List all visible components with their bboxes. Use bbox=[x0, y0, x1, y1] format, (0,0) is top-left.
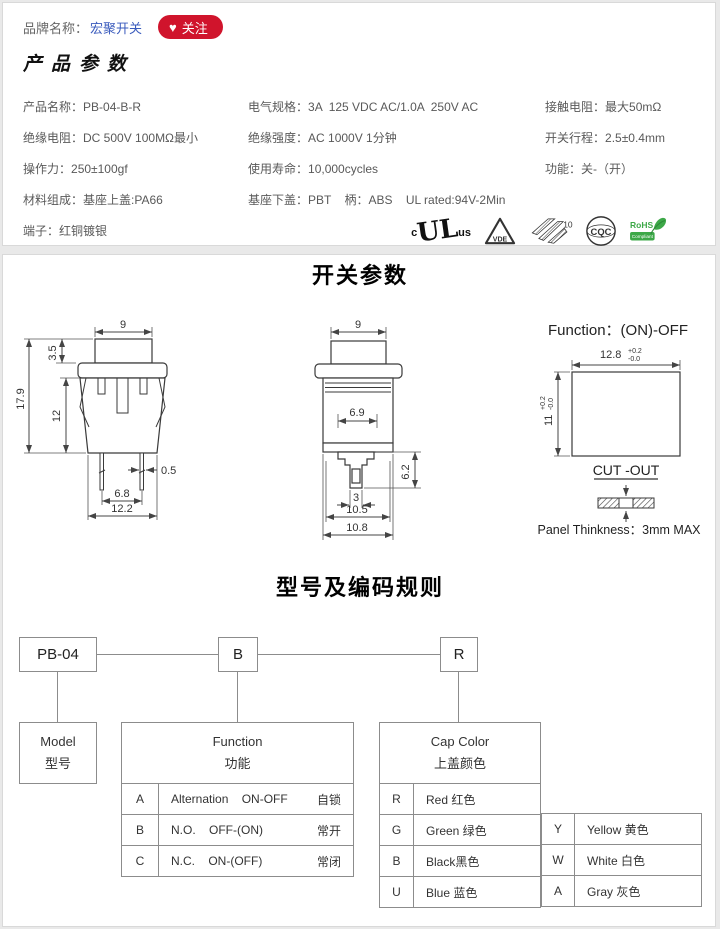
follow-button[interactable]: ♥ 关注 bbox=[158, 15, 223, 39]
dim-side-inner-width: 6.9 bbox=[349, 407, 364, 419]
cul-us-icon: c UL us bbox=[411, 221, 471, 241]
dim-front-pin-pitch: 6.8 bbox=[114, 488, 129, 500]
cqc-icon: CQC bbox=[585, 215, 617, 247]
product-params-title: 产品参数 bbox=[23, 49, 135, 76]
svg-text:VDE: VDE bbox=[493, 236, 508, 243]
dim-front-pin-width: 0.5 bbox=[161, 465, 176, 477]
cutout-function-label: Function：(ON)-OFF bbox=[548, 322, 688, 339]
param-function: 功能：关-（开） bbox=[545, 160, 707, 177]
follow-label: 关注 bbox=[182, 18, 208, 37]
connector-line bbox=[97, 654, 218, 655]
param-life: 使用寿命：10,000cycles bbox=[248, 160, 545, 177]
cap-color-row-r: R Red 红色 bbox=[380, 784, 540, 815]
product-info-card: 品牌名称： 宏聚开关 ♥ 关注 产品参数 产品名称：PB-04-B-R 电气规格… bbox=[2, 2, 716, 246]
side-view-drawing: 9 6.9 6.2 3 10.5 10.8 bbox=[293, 315, 448, 545]
cap-color-table: Cap Color 上盖颜色 R Red 红色 G Green 绿色 B Bla… bbox=[379, 722, 541, 908]
svg-text:-0.0: -0.0 bbox=[628, 356, 640, 363]
cap-color-row-u: U Blue 蓝色 bbox=[380, 877, 540, 907]
function-row-c: C N.C. ON-(OFF) 常闭 bbox=[122, 846, 353, 876]
dim-front-total-height: 17.9 bbox=[15, 388, 27, 409]
code-box-function: B bbox=[218, 637, 258, 672]
dim-front-body-width: 12.2 bbox=[111, 503, 132, 515]
param-terminal: 端子：红铜镀银 bbox=[23, 222, 248, 239]
dim-front-cap-height: 3.5 bbox=[47, 345, 59, 360]
connector-line bbox=[458, 672, 459, 722]
page: 品牌名称： 宏聚开关 ♥ 关注 产品参数 产品名称：PB-04-B-R 电气规格… bbox=[0, 0, 720, 929]
svg-text:+0.2: +0.2 bbox=[628, 348, 642, 355]
model-box: Model 型号 bbox=[19, 722, 97, 784]
cap-color-row-g: G Green 绿色 bbox=[380, 815, 540, 846]
svg-text:Compliant: Compliant bbox=[632, 234, 654, 240]
function-row-b: B N.O. OFF-(ON) 常开 bbox=[122, 815, 353, 846]
code-box-color: R bbox=[440, 637, 478, 672]
cap-color-row-b: B Black黑色 bbox=[380, 846, 540, 877]
param-grid: 产品名称：PB-04-B-R 电气规格：3A 125 VDC AC/1.0A 2… bbox=[23, 91, 707, 246]
connector-line bbox=[258, 654, 440, 655]
svg-text:RoHS: RoHS bbox=[630, 220, 653, 230]
svg-text:+0.2: +0.2 bbox=[540, 396, 547, 410]
cap-color-row-a: A Gray 灰色 bbox=[542, 876, 701, 906]
brand-row: 品牌名称： 宏聚开关 ♥ 关注 bbox=[23, 15, 223, 39]
param-travel: 开关行程：2.5±0.4mm bbox=[545, 129, 707, 146]
rohs-compliant-icon: RoHS Compliant bbox=[629, 214, 667, 248]
connector-line bbox=[57, 672, 58, 722]
cutout-drawing: Function：(ON)-OFF 12.8 +0.2 -0.0 11 +0.2… bbox=[518, 315, 720, 537]
svg-text:10: 10 bbox=[563, 219, 573, 229]
front-view-drawing: 9 17.9 3.5 12 0.5 6.8 12.2 bbox=[10, 315, 235, 530]
function-table: Function 功能 A Alternation ON-OFF 自锁 B N.… bbox=[121, 722, 354, 877]
cap-color-row-y: Y Yellow 黄色 bbox=[542, 814, 701, 845]
dim-side-lower-height: 6.2 bbox=[400, 464, 412, 479]
code-box-model: PB-04 bbox=[19, 637, 97, 672]
param-material: 材料组成：基座上盖:PA66 bbox=[23, 191, 248, 208]
param-contact-resistance: 接触电阻：最大50mΩ bbox=[545, 98, 707, 115]
dim-side-width-2: 10.8 bbox=[346, 522, 367, 534]
certifications: c UL us VDE bbox=[248, 215, 707, 246]
coding-rules-title: 型号及编码规则 bbox=[0, 570, 720, 602]
function-table-header: Function 功能 bbox=[122, 723, 353, 784]
ek-mark-icon: 10 bbox=[529, 216, 573, 246]
param-electrical-rating: 电气规格：3A 125 VDC AC/1.0A 250V AC bbox=[248, 98, 545, 115]
param-dielectric-strength: 绝缘强度：AC 1000V 1分钟 bbox=[248, 129, 545, 146]
cap-color-table-right: Y Yellow 黄色 W White 白色 A Gray 灰色 bbox=[541, 813, 702, 907]
cap-color-row-w: W White 白色 bbox=[542, 845, 701, 876]
dim-front-top-width: 9 bbox=[120, 319, 126, 331]
cutout-panel-note: Panel Thinkness：3mm MAX bbox=[537, 523, 701, 537]
param-product-name: 产品名称：PB-04-B-R bbox=[23, 98, 248, 115]
vde-triangle-icon: VDE bbox=[483, 216, 517, 246]
dim-front-body-height: 12 bbox=[51, 410, 63, 422]
brand-label: 品牌名称： bbox=[23, 18, 88, 37]
dim-side-top-width: 9 bbox=[355, 319, 361, 331]
svg-text:CQC: CQC bbox=[591, 225, 612, 236]
dim-cutout-height: 11 bbox=[543, 415, 555, 426]
dim-side-pin-width: 3 bbox=[353, 492, 359, 504]
cap-color-header: Cap Color 上盖颜色 bbox=[380, 723, 540, 784]
brand-link[interactable]: 宏聚开关 bbox=[90, 18, 142, 37]
cutout-label: CUT -OUT bbox=[593, 462, 660, 478]
dim-side-width-1: 10.5 bbox=[346, 504, 367, 516]
function-row-a: A Alternation ON-OFF 自锁 bbox=[122, 784, 353, 815]
param-base-material: 基座下盖：PBT 柄：ABS UL rated:94V-2Min bbox=[248, 191, 545, 208]
heart-icon: ♥ bbox=[169, 21, 177, 34]
switch-params-title: 开关参数 bbox=[0, 258, 720, 290]
connector-line bbox=[237, 672, 238, 722]
dim-cutout-width: 12.8 bbox=[600, 349, 621, 361]
svg-text:-0.0: -0.0 bbox=[548, 398, 555, 410]
param-insulation-resistance: 绝缘电阻：DC 500V 100MΩ最小 bbox=[23, 129, 248, 146]
param-operating-force: 操作力：250±100gf bbox=[23, 160, 248, 177]
